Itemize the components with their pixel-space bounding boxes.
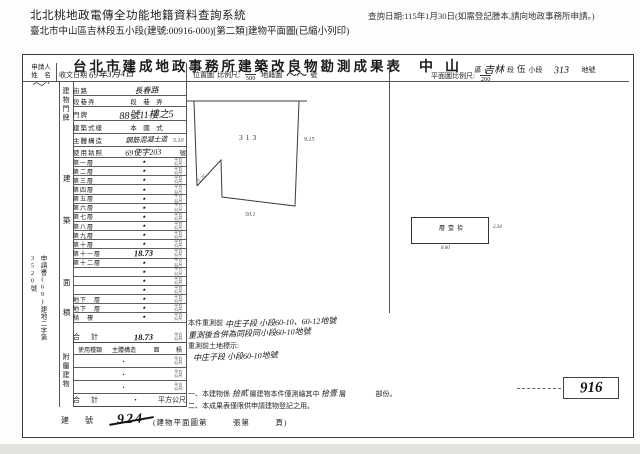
annex-header-area-2: 積 <box>172 345 186 354</box>
floors-total-value: 18.73 <box>113 331 174 343</box>
area-strip-char-1: 建 <box>63 173 71 184</box>
building-number-dash-lead <box>517 388 561 389</box>
annex-row: ・ 平方公尺 <box>73 381 186 394</box>
section-unit: 段 <box>507 65 514 76</box>
building-number-old-crossed: 924 <box>117 412 145 429</box>
area-strip-char-3: 面 <box>63 277 71 288</box>
note-two: 二、本成果表僅限供申請建物登記之用。 <box>188 401 314 411</box>
receipt-date-value: 69年3月4日 <box>89 66 134 81</box>
map-parcel-number: 313 <box>239 133 259 142</box>
map-dim-bottom: 50.1 <box>245 212 256 218</box>
door-label: 門牌 <box>73 109 107 119</box>
annex-total-value: ・ <box>113 395 158 405</box>
grid-line <box>56 63 57 81</box>
location-map-label: 位置圖 <box>193 70 214 80</box>
strip-column-line <box>59 81 60 407</box>
note-one: 一、本建物係 拾貳 層建物本件僅測繪其中 拾壹 層 部份。 <box>188 388 397 399</box>
subsection-unit: 小段 <box>529 65 543 76</box>
header-divider-line <box>23 81 629 82</box>
style-label: 建築式樣 <box>73 122 107 132</box>
parcel-unit: 地號 <box>582 65 596 76</box>
cadastral-no-label: 號 <box>310 70 317 80</box>
receipt-date-label: 收文日期 <box>59 71 87 79</box>
window-bottom-strip <box>0 444 640 454</box>
note-resurvey-line2: 重測後合併為同段同小段60-10地號 <box>188 328 311 339</box>
cadastral-sheet-scribble <box>285 70 307 79</box>
subsection-name: 伍 <box>517 63 526 76</box>
location-map-scale: 位置圖 比例尺: 1 500 地籍圖 號 <box>193 67 317 82</box>
structure-label: 主體構造 <box>73 135 107 145</box>
annex-total-label: 合 計 <box>73 395 113 405</box>
door-number-row: 門牌 88號11樓之5 <box>73 107 186 121</box>
plan-dim-bottom: 8.00 <box>441 246 450 251</box>
building-address-strip: 建物門牌 <box>61 87 71 123</box>
floor-area-table: 第一層 ・ 平方公尺 第二層 ・ 平方公尺 第三層 ・ 平方公尺 第四層 ・ 平… <box>73 158 186 323</box>
annex-total-row: 合 計 ・ 平方公尺 <box>73 394 186 407</box>
scanned-survey-form: 台北市建成地政事務所建築改良物勘測成果表 中山 區 吉林 段 伍 小段 313 … <box>22 54 634 438</box>
location-scale-fraction: 1 500 <box>245 67 256 82</box>
annex-header-area-1: 面 <box>141 345 172 354</box>
application-number-vertical: 申請書(69)建地二字第3520號 <box>27 255 47 365</box>
floors-total-label: 合 計 <box>73 332 113 342</box>
query-system-page: 北北桃地政電傳全功能地籍資料查詢系統 查詢日期:115年1月30日(如需登記謄本… <box>0 0 640 454</box>
map-dim-right: 9.15 <box>304 137 315 143</box>
parcel-number: 313 <box>553 65 568 77</box>
street-label: 街路 <box>73 85 107 95</box>
note-presurvey-label: 重測前土地標示: <box>188 341 239 351</box>
location-map: 5.10 313 9.15 5.25 50.1 <box>173 85 413 225</box>
street-row: 街路 長春路 <box>73 85 186 96</box>
floor-plan-scale-label: 平面圖比例尺: <box>431 71 475 81</box>
annex-building-strip: 附屬建物 <box>61 353 71 389</box>
area-strip-char-4: 積 <box>63 307 71 318</box>
building-number-new: 916 <box>579 379 602 397</box>
structure-row: 主體構造 鋼筋混凝土造 <box>73 134 186 147</box>
note-resurvey-line1: 本件重測前 中庄子段 小段60-10、60-12地號 <box>188 317 336 328</box>
annex-rows: ・ 平方公尺 ・ 平方公尺 ・ 平方公尺 <box>73 355 186 394</box>
area-strip-char-2: 築 <box>63 215 71 226</box>
note-presurvey-parcel: 中庄子段 小段60-10地號 <box>193 351 278 362</box>
license-label: 使用執照 <box>73 147 107 157</box>
building-style-row: 建築式樣 本 國 式 <box>73 121 186 134</box>
system-title: 北北桃地政電傳全功能地籍資料查詢系統 <box>30 7 246 23</box>
building-number-box: 916 <box>563 377 619 399</box>
map-dim-diagonal: 5.25 <box>196 174 207 185</box>
annex-header-use: 使用種類 <box>73 345 107 354</box>
floors-total-row: 合 計 18.73 平方公尺 <box>73 332 186 343</box>
cadastral-map-label: 地籍圖 <box>261 70 282 80</box>
document-identifier: 臺北市中山區吉林段五小段(建號:00916-000)[第二類]建物平面圖(已縮小… <box>30 23 349 37</box>
annex-header-structure: 主體構造 <box>107 345 141 354</box>
floor-plan-rectangle: 拾壹層 <box>411 217 489 244</box>
annex-row: ・ 平方公尺 <box>73 368 186 381</box>
plan-sheet-footer: (建物平面圖第 張第 頁) <box>153 417 288 428</box>
annex-header-row: 使用種類 主體構造 面 積 <box>73 344 186 355</box>
building-number-label: 建 號 <box>61 416 97 425</box>
floor-row: 騎 樓 ・ 平方公尺 <box>73 313 186 322</box>
applicant-name-label: 申請人 姓 名 <box>26 64 56 88</box>
plan-dim-right: 2.34 <box>493 225 502 230</box>
map-dim-left: 5.10 <box>173 138 184 144</box>
scale-label: 比例尺: <box>217 70 240 80</box>
query-date: 查詢日期:115年1月30日(如需登記謄本,請向地政事務所申請。) <box>368 10 595 22</box>
building-number-row: 建 號 924 <box>61 412 144 428</box>
floor-plan-room-label: 拾壹層 <box>437 224 464 237</box>
lane-label: 段巷弄 <box>73 96 107 106</box>
receipt-date-cell: 收文日期 69年3月4日 <box>59 67 134 80</box>
annex-row: ・ 平方公尺 <box>73 355 186 368</box>
